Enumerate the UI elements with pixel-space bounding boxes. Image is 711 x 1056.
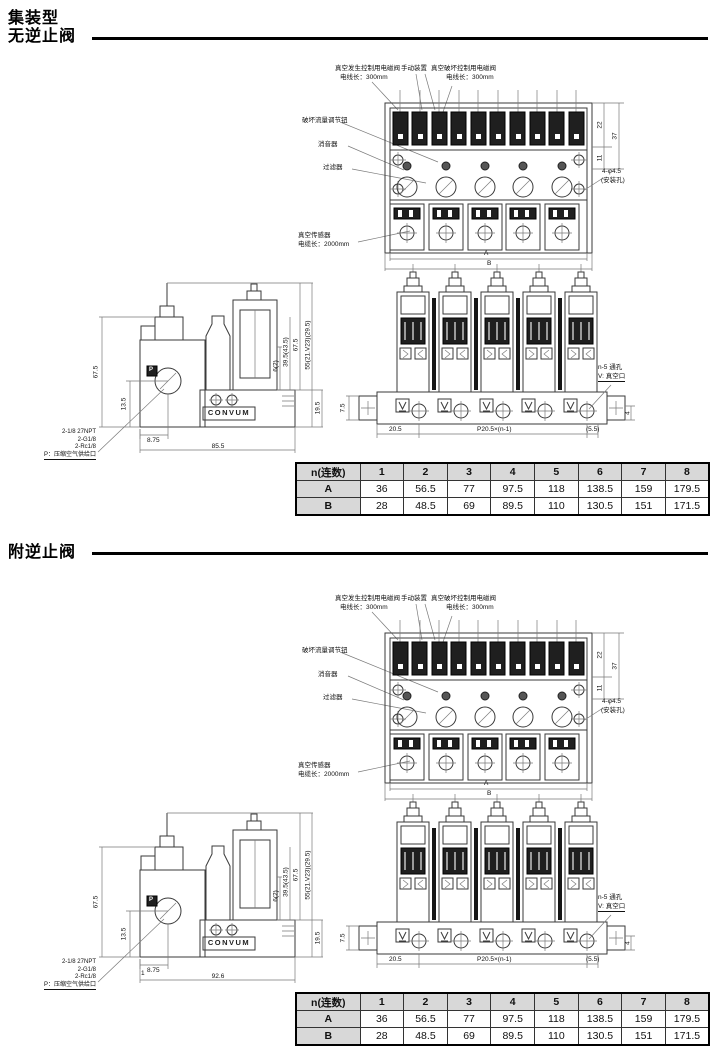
port-letter-p: P bbox=[149, 367, 153, 373]
dim-6-2: 6(2) bbox=[273, 360, 280, 372]
label-vacuum-port: V: 真空口 bbox=[598, 903, 625, 912]
table-cell: A bbox=[296, 1011, 360, 1028]
table-cell: n(连数) bbox=[296, 993, 360, 1011]
dim-4: 4 bbox=[625, 941, 632, 945]
table-row-b: B 28 48.5 69 89.5 110 130.5 151 171.5 bbox=[296, 498, 709, 516]
label-mount-hole-note: (安装孔) bbox=[601, 707, 625, 715]
table-cell: 110 bbox=[535, 498, 579, 516]
table-cell: 130.5 bbox=[578, 1028, 622, 1046]
section-with-check-valve: 附逆止阀 bbox=[0, 530, 711, 1056]
table-cell: A bbox=[296, 481, 360, 498]
label-vacuum-port: V: 真空口 bbox=[598, 373, 625, 382]
label-break-flow-knob: 破坏流量调节钮 bbox=[302, 117, 348, 125]
dim-5-5: (5.5) bbox=[586, 956, 599, 964]
label-break-flow-knob: 破坏流量调节钮 bbox=[302, 647, 348, 655]
table-row-a: A 36 56.5 77 97.5 118 138.5 159 179.5 bbox=[296, 481, 709, 498]
convum-logo: CONVUM bbox=[203, 938, 255, 947]
table-cell: 179.5 bbox=[665, 481, 709, 498]
table-cell: 151 bbox=[622, 1028, 666, 1046]
dim-39-5: 39.5(43.5) bbox=[283, 337, 290, 367]
table-cell: 179.5 bbox=[665, 1011, 709, 1028]
table-cell: 130.5 bbox=[578, 498, 622, 516]
table-cell: 1 bbox=[360, 993, 404, 1011]
table-cell: 8 bbox=[665, 993, 709, 1011]
dim-pitch: P20.5×(n-1) bbox=[477, 426, 512, 434]
label-vacuum-break-solenoid: 真空破坏控制用电磁阀 bbox=[431, 65, 496, 73]
dim-67-5-left: 67.5 bbox=[93, 896, 100, 909]
label-vacuum-break-solenoid: 真空破坏控制用电磁阀 bbox=[431, 595, 496, 603]
dim-37: 37 bbox=[612, 662, 619, 669]
dim-39-5: 39.5(43.5) bbox=[283, 867, 290, 897]
table-cell: 4 bbox=[491, 463, 535, 481]
manifold-front-view bbox=[340, 604, 624, 801]
dim-13-5: 13.5 bbox=[121, 398, 128, 411]
manifold-bottom-view bbox=[346, 264, 635, 438]
label-sensor-cable-length: 电缆长：2000mm bbox=[298, 241, 349, 249]
port-spec-air-supply: P：压缩空气供给口 bbox=[44, 452, 96, 461]
dim-B: B bbox=[487, 260, 491, 268]
dim-37: 37 bbox=[612, 132, 619, 139]
section-without-check-valve: 集装型 无逆止阀 bbox=[0, 0, 711, 530]
table-header-row: n(连数) 1 2 3 4 5 6 7 8 bbox=[296, 463, 709, 481]
table-cell: 77 bbox=[447, 1011, 491, 1028]
table-cell: 2 bbox=[404, 463, 448, 481]
dim-55: 55(21.V23)(29.5) bbox=[305, 850, 312, 899]
label-silencer: 消音器 bbox=[318, 671, 338, 679]
table-cell: 151 bbox=[622, 498, 666, 516]
dim-20-5: 20.5 bbox=[389, 956, 402, 964]
label-filter: 过滤器 bbox=[323, 694, 343, 702]
label-vacuum-gen-solenoid: 真空发生控制用电磁阀 bbox=[335, 595, 400, 603]
label-through-holes: n-5 通孔 bbox=[598, 894, 622, 902]
dim-7-5: 7.5 bbox=[340, 403, 347, 412]
table-cell: 28 bbox=[360, 1028, 404, 1046]
dim-19-5: 19.5 bbox=[315, 402, 322, 415]
table-cell: B bbox=[296, 498, 360, 516]
label-filter: 过滤器 bbox=[323, 164, 343, 172]
table-header-row: n(连数) 1 2 3 4 5 6 7 8 bbox=[296, 993, 709, 1011]
dim-11: 11 bbox=[597, 155, 604, 162]
table-cell: 3 bbox=[447, 463, 491, 481]
dim-B: B bbox=[487, 790, 491, 798]
table-cell: 56.5 bbox=[404, 481, 448, 498]
dimension-table-1: n(连数) 1 2 3 4 5 6 7 8 A 36 56.5 77 97.5 … bbox=[295, 462, 710, 516]
port-spec-block: 2-1/8 27NPT 2-G1/8 2-Rc1/8 P：压缩空气供给口 bbox=[2, 959, 96, 990]
table-cell: 5 bbox=[535, 993, 579, 1011]
label-through-holes: n-5 通孔 bbox=[598, 364, 622, 372]
table-cell: 69 bbox=[447, 498, 491, 516]
dim-pitch: P20.5×(n-1) bbox=[477, 956, 512, 964]
label-vacuum-sensor: 真空传感器 bbox=[298, 232, 331, 240]
table-cell: 36 bbox=[360, 1011, 404, 1028]
dim-13-5: 13.5 bbox=[121, 928, 128, 941]
table-cell: 56.5 bbox=[404, 1011, 448, 1028]
convum-logo: CONVUM bbox=[203, 408, 255, 417]
table-cell: 5 bbox=[535, 463, 579, 481]
table-row-a: A 36 56.5 77 97.5 118 138.5 159 179.5 bbox=[296, 1011, 709, 1028]
dim-5-5: (5.5) bbox=[586, 426, 599, 434]
table-cell: 7 bbox=[622, 463, 666, 481]
label-manual-override: 手动装置 bbox=[401, 595, 427, 603]
port-spec-g18: 2-G1/8 bbox=[2, 967, 96, 975]
dim-20-5: 20.5 bbox=[389, 426, 402, 434]
dimension-table-2: n(连数) 1 2 3 4 5 6 7 8 A 36 56.5 77 97.5 … bbox=[295, 992, 710, 1046]
dim-55: 55(21.V23)(29.5) bbox=[305, 320, 312, 369]
port-letter-p: P bbox=[149, 897, 153, 903]
table-cell: 77 bbox=[447, 481, 491, 498]
table-cell: B bbox=[296, 1028, 360, 1046]
manifold-bottom-view bbox=[346, 794, 635, 968]
table-cell: 6 bbox=[578, 463, 622, 481]
table-cell: 69 bbox=[447, 1028, 491, 1046]
table-cell: 89.5 bbox=[491, 498, 535, 516]
label-vacuum-gen-solenoid: 真空发生控制用电磁阀 bbox=[335, 65, 400, 73]
table-cell: 159 bbox=[622, 1011, 666, 1028]
dim-overall-width-1: 85.5 bbox=[200, 443, 236, 451]
table-cell: 118 bbox=[535, 1011, 579, 1028]
table-cell: 97.5 bbox=[491, 481, 535, 498]
port-spec-block: 2-1/8 27NPT 2-G1/8 2-Rc1/8 P：压缩空气供给口 bbox=[2, 429, 96, 460]
table-cell: 138.5 bbox=[578, 481, 622, 498]
label-break-wire-length: 电线长：300mm bbox=[446, 74, 494, 82]
port-spec-rc18: 2-Rc1/8 bbox=[2, 974, 96, 982]
table-cell: 118 bbox=[535, 481, 579, 498]
label-sensor-cable-length: 电缆长：2000mm bbox=[298, 771, 349, 779]
label-break-wire-length: 电线长：300mm bbox=[446, 604, 494, 612]
label-vacuum-sensor: 真空传感器 bbox=[298, 762, 331, 770]
dim-19-5: 19.5 bbox=[315, 932, 322, 945]
pump-side-view bbox=[98, 283, 323, 453]
label-manual-override: 手动装置 bbox=[401, 65, 427, 73]
drawing-area-2: 真空发生控制用电磁阀 电线长：300mm 手动装置 真空破坏控制用电磁阀 电线长… bbox=[0, 530, 711, 1056]
table-cell: 3 bbox=[447, 993, 491, 1011]
table-cell: 8 bbox=[665, 463, 709, 481]
dim-6-2: 6(2) bbox=[273, 890, 280, 902]
table-cell: 171.5 bbox=[665, 1028, 709, 1046]
table-cell: 1 bbox=[360, 463, 404, 481]
table-cell: 2 bbox=[404, 993, 448, 1011]
table-cell: 36 bbox=[360, 481, 404, 498]
label-gen-wire-length: 电线长：300mm bbox=[340, 604, 388, 612]
dim-67-5-left: 67.5 bbox=[93, 366, 100, 379]
label-mount-hole: 4-φ4.5 bbox=[602, 698, 621, 706]
table-cell: n(连数) bbox=[296, 463, 360, 481]
drawing-area-1: 真空发生控制用电磁阀 电线长：300mm 手动装置 真空破坏控制用电磁阀 电线长… bbox=[0, 0, 711, 530]
table-cell: 6 bbox=[578, 993, 622, 1011]
port-spec-npt: 2-1/8 27NPT bbox=[2, 429, 96, 437]
label-mount-hole-note: (安装孔) bbox=[601, 177, 625, 185]
dim-4: 4 bbox=[625, 411, 632, 415]
table-cell: 28 bbox=[360, 498, 404, 516]
port-spec-g18: 2-G1/8 bbox=[2, 437, 96, 445]
dim-11: 11 bbox=[597, 685, 604, 692]
table-cell: 138.5 bbox=[578, 1011, 622, 1028]
label-silencer: 消音器 bbox=[318, 141, 338, 149]
table-cell: 97.5 bbox=[491, 1011, 535, 1028]
dim-67-5-right: 67.5 bbox=[293, 869, 300, 882]
table-row-b: B 28 48.5 69 89.5 110 130.5 151 171.5 bbox=[296, 1028, 709, 1046]
catalog-page: 集装型 无逆止阀 bbox=[0, 0, 711, 1056]
table-cell: 4 bbox=[491, 993, 535, 1011]
dim-A: A bbox=[484, 780, 488, 788]
dim-22: 22 bbox=[597, 121, 604, 128]
dim-overall-width-2: 92.6 bbox=[200, 973, 236, 981]
table-cell: 48.5 bbox=[404, 1028, 448, 1046]
table-cell: 171.5 bbox=[665, 498, 709, 516]
table-cell: 159 bbox=[622, 481, 666, 498]
table-cell: 89.5 bbox=[491, 1028, 535, 1046]
manifold-front-view bbox=[340, 74, 624, 271]
table-cell: 7 bbox=[622, 993, 666, 1011]
dim-67-5-right: 67.5 bbox=[293, 339, 300, 352]
dim-A: A bbox=[484, 250, 488, 258]
port-spec-air-supply: P：压缩空气供给口 bbox=[44, 982, 96, 991]
table-cell: 48.5 bbox=[404, 498, 448, 516]
label-mount-hole: 4-φ4.5 bbox=[602, 168, 621, 176]
dim-7-5: 7.5 bbox=[340, 933, 347, 942]
dim-22: 22 bbox=[597, 651, 604, 658]
label-gen-wire-length: 电线长：300mm bbox=[340, 74, 388, 82]
dim-extra-1: 1 bbox=[141, 970, 145, 978]
port-spec-npt: 2-1/8 27NPT bbox=[2, 959, 96, 967]
table-cell: 110 bbox=[535, 1028, 579, 1046]
port-spec-rc18: 2-Rc1/8 bbox=[2, 444, 96, 452]
pump-side-view bbox=[98, 813, 323, 983]
dim-8-75: 8.75 bbox=[147, 437, 160, 445]
dim-8-75: 8.75 bbox=[147, 967, 160, 975]
